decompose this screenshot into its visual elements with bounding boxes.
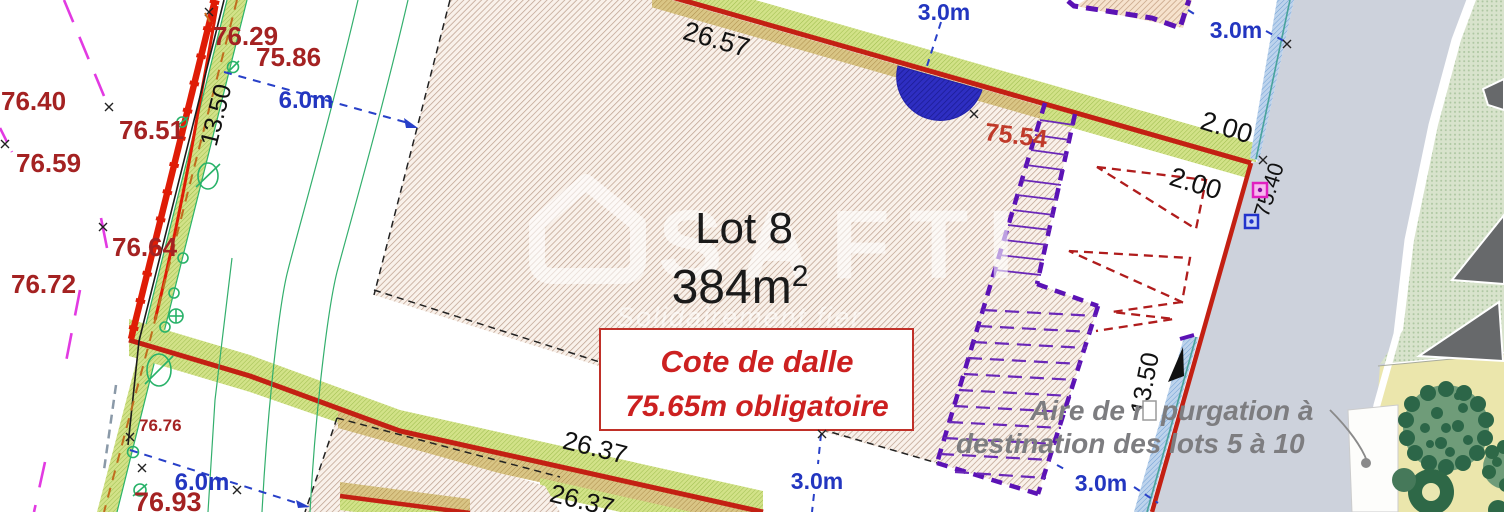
svg-text:76.51: 76.51 [119, 115, 184, 145]
svg-text:3.0m: 3.0m [1075, 470, 1127, 496]
svg-text:3.0m: 3.0m [918, 0, 970, 25]
svg-text:76.93: 76.93 [134, 487, 202, 512]
svg-text:Lot 8: Lot 8 [695, 204, 793, 253]
svg-text:75.65m obligatoire: 75.65m obligatoire [625, 390, 888, 423]
svg-text:76.40: 76.40 [1, 86, 66, 116]
svg-text:destination des lots 5 à 10: destination des lots 5 à 10 [956, 428, 1305, 459]
svg-text:Aire de r: Aire de r [1029, 395, 1146, 426]
svg-text:6.0m: 6.0m [279, 87, 334, 114]
svg-text:3.0m: 3.0m [1210, 17, 1262, 43]
svg-text:3.0m: 3.0m [791, 468, 843, 494]
svg-text:76.76: 76.76 [139, 416, 182, 435]
svg-text:76.72: 76.72 [11, 269, 76, 299]
svg-text:76.59: 76.59 [16, 148, 81, 178]
svg-text:75.86: 75.86 [256, 42, 321, 72]
svg-text:Cote de dalle: Cote de dalle [661, 344, 854, 379]
svg-text:purgation à: purgation à [1160, 395, 1313, 426]
svg-text:384m2: 384m2 [672, 260, 809, 314]
svg-text:76.64: 76.64 [112, 232, 178, 262]
